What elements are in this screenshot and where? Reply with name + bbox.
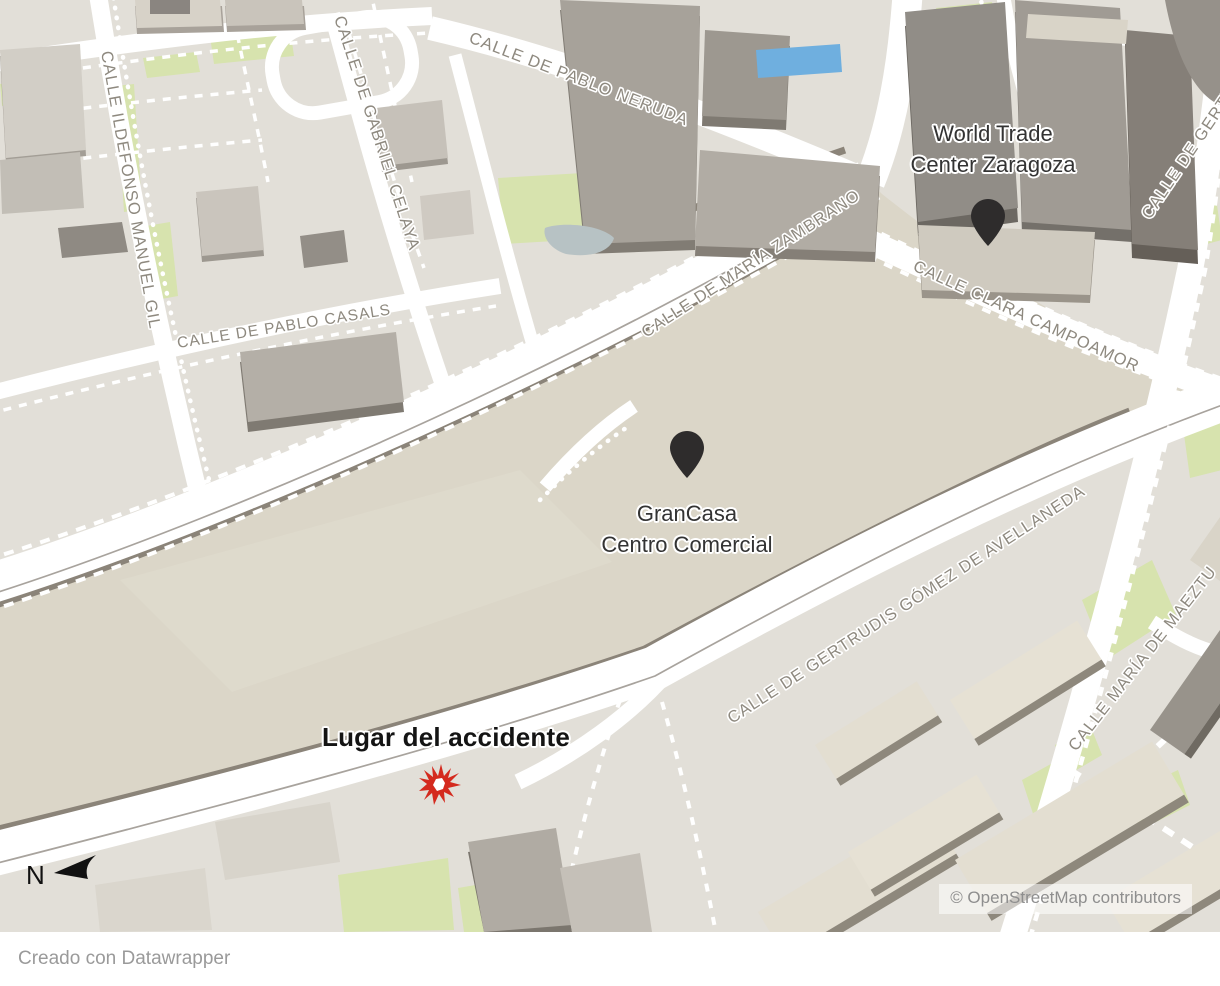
datawrapper-embed: CALLE DE PABLO NERUDA CALLE DE GABRIEL C… [0,0,1220,986]
map-canvas: CALLE DE PABLO NERUDA CALLE DE GABRIEL C… [0,0,1220,932]
footer: Creado con Datawrapper [0,932,1220,986]
osm-attribution-link[interactable]: © OpenStreetMap contributors [939,884,1192,914]
datawrapper-credit-link[interactable]: Creado con Datawrapper [18,948,230,970]
pool-water [756,44,842,78]
locator-map: CALLE DE PABLO NERUDA CALLE DE GABRIEL C… [0,0,1220,932]
